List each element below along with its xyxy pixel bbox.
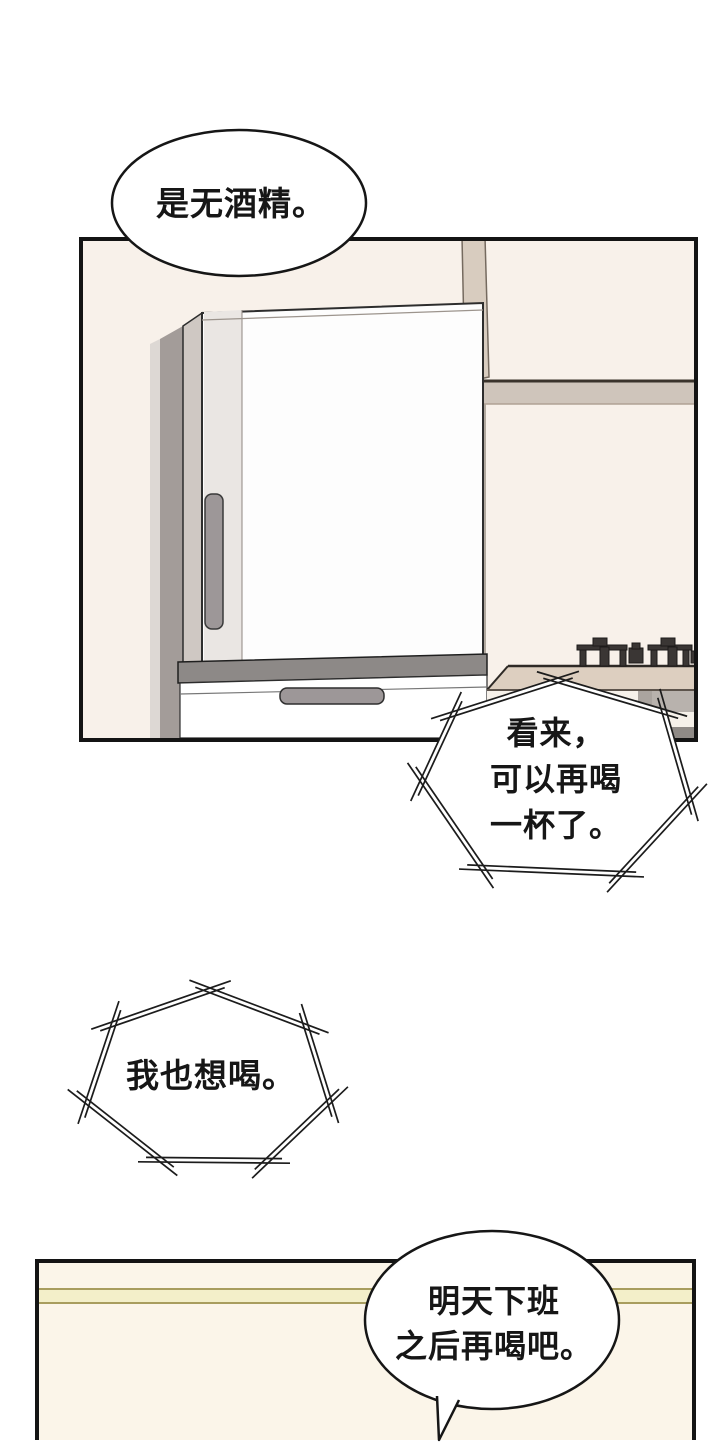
speech-bubble-round: 明天下班 之后再喝吧。 (362, 1228, 626, 1442)
speech-line: 是无酒精。 (156, 182, 326, 227)
speech-line: 明天下班 (428, 1279, 560, 1324)
speech-bubble-spiky-2: 我也想喝。 (60, 965, 362, 1187)
fridge-side-panel (183, 313, 202, 670)
speech-bubble-ellipse: 是无酒精。 (108, 126, 374, 282)
fridge-door-handle (205, 494, 223, 629)
wall-and-cabinet (462, 241, 694, 666)
fridge-door (202, 303, 483, 665)
speech-line: 一杯了。 (490, 802, 622, 848)
speech-bubble-spiky-1: 看来， 可以再喝 一杯了。 (400, 655, 712, 903)
speech-text: 是无酒精。 (108, 126, 374, 282)
wall-strip-light (150, 339, 160, 738)
speech-line: 可以再喝 (490, 756, 622, 802)
speech-text: 看来， 可以再喝 一杯了。 (400, 655, 712, 903)
comic-page: { "page": { "background": "#ffffff" }, "… (0, 0, 720, 1440)
speech-line: 看来， (506, 710, 605, 756)
speech-line: 之后再喝吧。 (395, 1324, 593, 1369)
speech-line: 我也想喝。 (126, 1054, 296, 1099)
speech-text: 我也想喝。 (60, 965, 362, 1187)
speech-text: 明天下班 之后再喝吧。 (362, 1228, 626, 1442)
drawer-handle (280, 688, 384, 704)
cabinet-underside (483, 381, 694, 404)
